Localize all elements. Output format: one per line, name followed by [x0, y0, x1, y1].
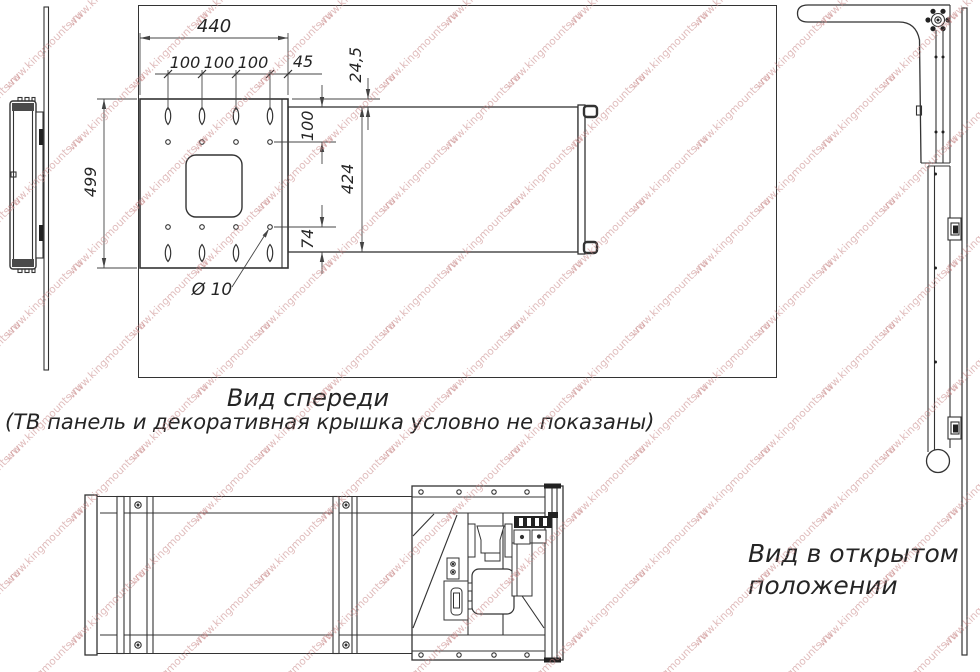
- drawing-sheet: 440 100 100 100 45 24,5 100 424 74 499 Ø…: [0, 0, 980, 672]
- panel-clamp-bottom: [948, 417, 961, 439]
- tv-hook-bottom: [584, 242, 597, 253]
- dim-edge-offset: 45: [283, 53, 323, 71]
- open-view-caption-line1: Вид в открытом: [748, 538, 980, 569]
- tv-hook-top: [584, 106, 597, 117]
- open-view-caption-line2: положении: [748, 570, 980, 601]
- arm-end-bar: [578, 105, 585, 254]
- dim-arm-height: 424: [339, 154, 357, 204]
- dim-width-total: 440: [184, 17, 244, 37]
- front-view-caption: Вид спереди: [150, 385, 466, 411]
- panel-clamp-top: [948, 218, 961, 240]
- dim-hole-diameter: Ø 10: [177, 281, 247, 300]
- side-view-closed: [10, 7, 49, 370]
- dim-plate-height: 499: [82, 157, 100, 207]
- dim-hole-pitch-3: 100: [233, 54, 273, 72]
- top-view: [85, 484, 563, 663]
- swing-arm: [798, 5, 951, 163]
- dim-arm-to-hole: 100: [299, 104, 317, 148]
- motor-bracket: [447, 558, 459, 579]
- hatch-band-top: [12, 103, 34, 111]
- actuator: [512, 543, 532, 596]
- hatch-band-bottom: [12, 259, 34, 267]
- wall-plate: [140, 99, 288, 268]
- dim-hole-to-bottom: 74: [299, 219, 317, 259]
- dim-top-gap: 24,5: [347, 40, 365, 90]
- tv-panel-edge: [44, 7, 49, 370]
- extension-arm: [288, 107, 578, 252]
- left-end-plate: [85, 495, 97, 655]
- roller: [927, 450, 950, 473]
- gearbox: [472, 569, 514, 614]
- front-view-note: (ТВ панель и декоративная крышка условно…: [5, 411, 641, 434]
